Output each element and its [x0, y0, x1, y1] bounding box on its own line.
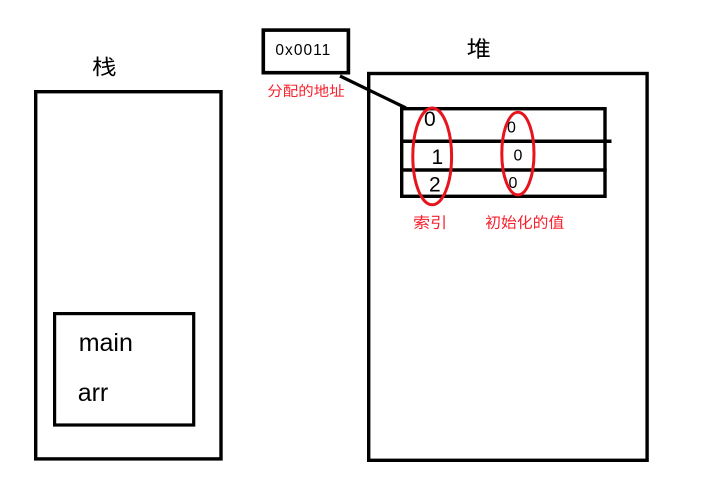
svg-text:2: 2 — [429, 174, 441, 197]
svg-text:0: 0 — [509, 175, 518, 192]
svg-text:0: 0 — [514, 147, 523, 164]
svg-text:arr: arr — [78, 379, 109, 407]
svg-text:1: 1 — [432, 146, 444, 169]
svg-text:0: 0 — [507, 120, 516, 137]
svg-text:main: main — [79, 329, 133, 357]
svg-text:0x0011: 0x0011 — [275, 42, 330, 59]
svg-text:0: 0 — [424, 108, 436, 131]
